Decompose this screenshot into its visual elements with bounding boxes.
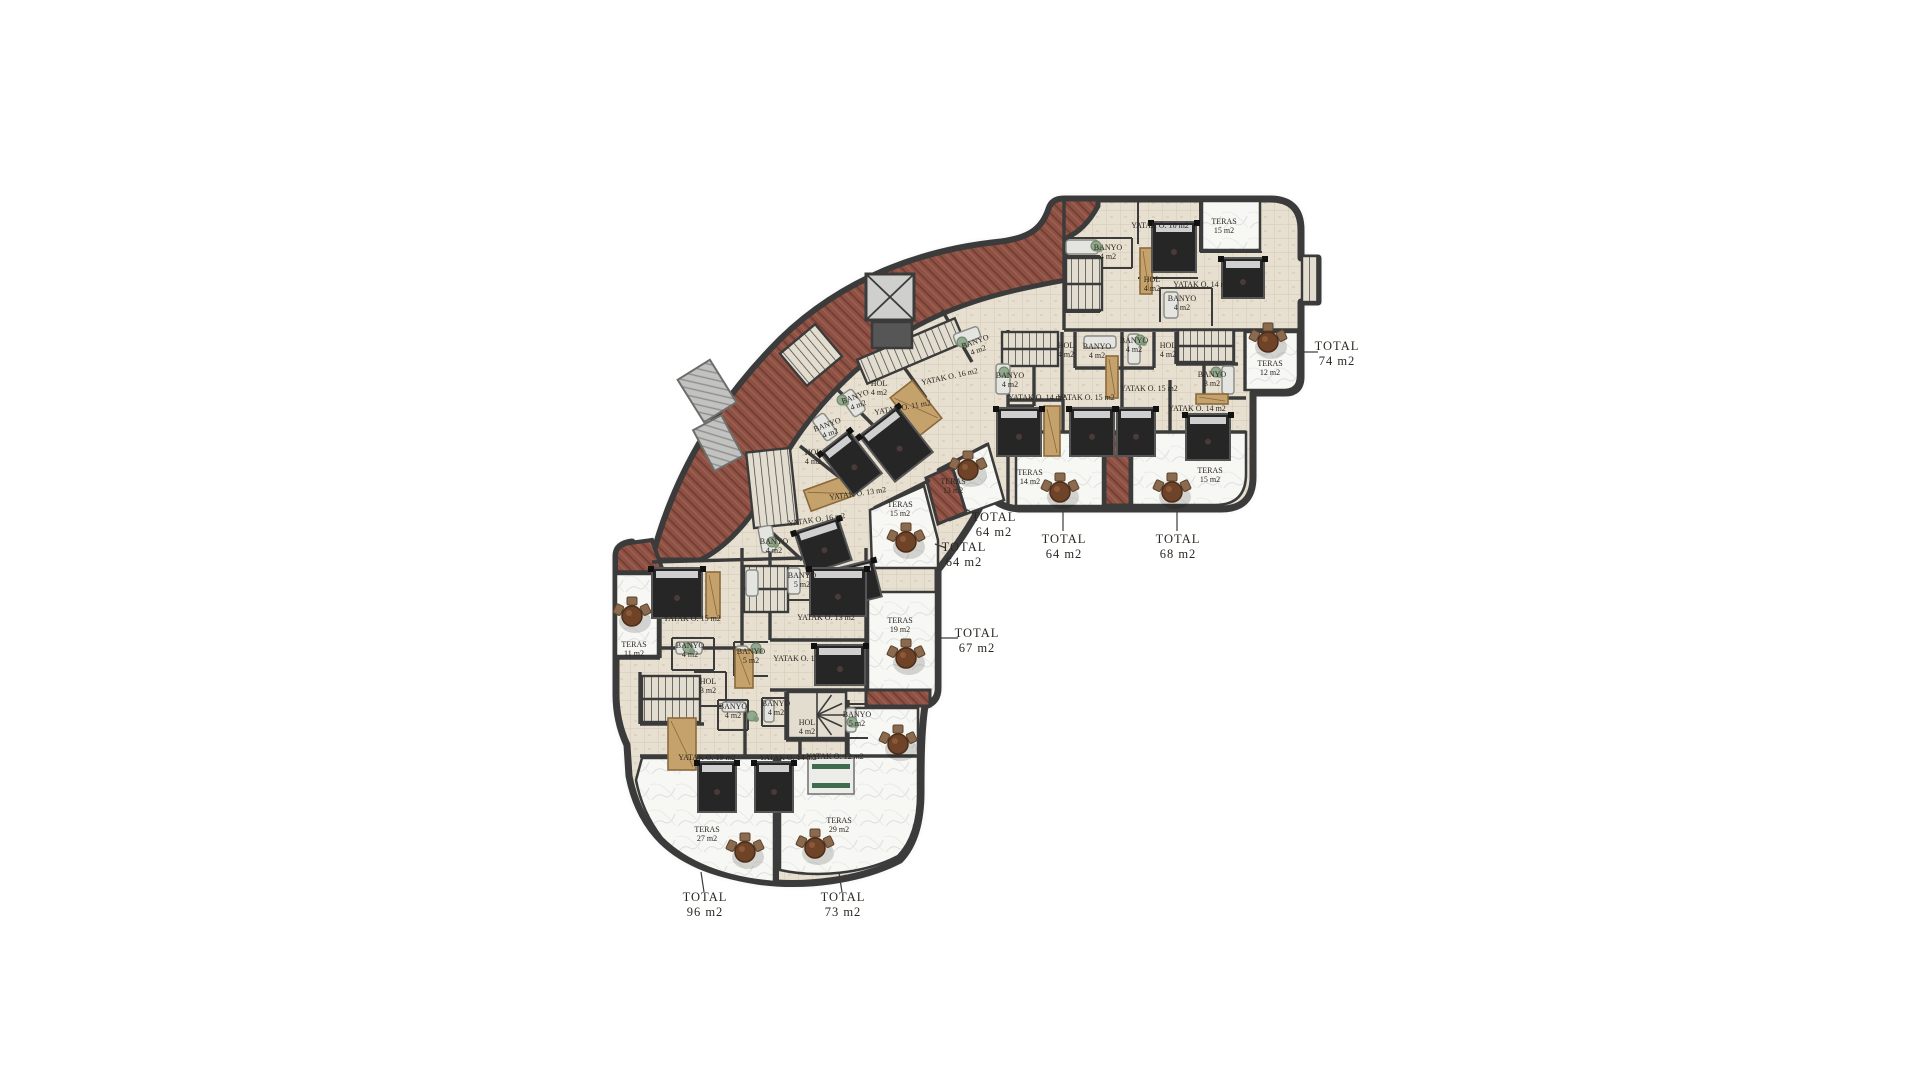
bed [808, 758, 854, 794]
chair [1167, 473, 1177, 481]
chair [1263, 323, 1273, 331]
bed [648, 566, 706, 618]
total-label: TOTAL67 m2 [955, 626, 1000, 655]
bathtub [746, 570, 758, 596]
room-label: TERAS12 m2 [1257, 359, 1282, 377]
room-label: TERAS11 m2 [621, 640, 646, 658]
room-label: HOL4 m2 [871, 379, 888, 397]
wardrobe [1044, 406, 1060, 456]
room-label: YATAK O. 15 m2 [663, 614, 721, 623]
stairs-u [1002, 332, 1058, 366]
total-label: TOTAL64 m2 [972, 510, 1017, 539]
room-label: TERAS14 m2 [1017, 468, 1042, 486]
divider-terrace-bottom [866, 690, 930, 706]
stairs-u [1178, 330, 1234, 362]
chair [1055, 473, 1065, 481]
room-label: YATAK O. 14 m2 [1168, 404, 1226, 413]
bed [1218, 256, 1268, 298]
room-label: TERAS15 m2 [1197, 466, 1222, 484]
total-label: TOTAL74 m2 [1315, 339, 1360, 368]
bed [1113, 406, 1159, 456]
room-label: YATAK O. 12 m2 [806, 752, 864, 761]
chair [627, 597, 637, 605]
chair [901, 523, 911, 531]
chair [810, 829, 820, 837]
stairs-u [1066, 258, 1102, 310]
chair [901, 639, 911, 647]
room-label: HOL4 m2 [1058, 341, 1075, 359]
total-label: TOTAL96 m2 [683, 890, 728, 919]
stairs-run [746, 448, 798, 528]
room-label: TERAS29 m2 [826, 816, 851, 834]
room-label: HOL3 m2 [700, 677, 717, 695]
total-label: TOTAL64 m2 [942, 540, 987, 569]
room-label: YATAK O. 17 m2 [773, 654, 831, 663]
bed [1066, 406, 1118, 456]
room-label: YATAK O. 19 m2 [678, 753, 736, 762]
chair [893, 725, 903, 733]
total-label: TOTAL68 m2 [1156, 532, 1201, 561]
stairs-run [1302, 256, 1318, 302]
bed [1182, 412, 1234, 460]
wardrobe [668, 718, 696, 770]
chair [963, 451, 973, 459]
room-label: TERAS27 m2 [694, 825, 719, 843]
total-label: TOTAL64 m2 [1042, 532, 1087, 561]
stairs-spiral [788, 692, 846, 738]
room-label: HOL4 m2 [1160, 341, 1177, 359]
elevator-layer [866, 274, 914, 348]
bed [751, 760, 797, 812]
room-label: HOL4 m2 [805, 448, 822, 466]
stairs-u [642, 676, 700, 722]
wardrobe [1196, 394, 1228, 404]
room-label: YATAK O. 13 m2 [797, 613, 855, 622]
floor-plan-page: { "title": "Apartment floor plan", "unit… [0, 0, 1920, 1080]
room-label: TERAS13 m2 [940, 477, 965, 495]
room-label: YATAK O. 15 m2 [1057, 393, 1115, 402]
room-label: TERAS15 m2 [1211, 217, 1236, 235]
room-label: YATAK O. 10 m2 [1131, 221, 1189, 230]
room-label: HOL4 m2 [1144, 275, 1161, 293]
room-label: YATAK O. 15 m2 [1120, 384, 1178, 393]
bed [811, 643, 869, 685]
total-leader-line [701, 872, 704, 892]
room-label: TERAS19 m2 [887, 616, 912, 634]
elevator [866, 274, 914, 320]
total-label: TOTAL73 m2 [821, 890, 866, 919]
wardrobe [1106, 356, 1118, 398]
floor-plan-drawing: YATAK O. 10 m2TERAS15 m2BANYO4 m2HOL4 m2… [0, 0, 1920, 1080]
bed [993, 406, 1045, 456]
room-label: TERAS15 m2 [887, 500, 912, 518]
elevator-shaft [872, 322, 912, 348]
wardrobe [706, 572, 720, 618]
room-label: YATAK O. 14 m2 [1173, 280, 1231, 289]
chair [740, 833, 750, 841]
bed [694, 760, 740, 812]
room-label: HOL4 m2 [799, 718, 816, 736]
